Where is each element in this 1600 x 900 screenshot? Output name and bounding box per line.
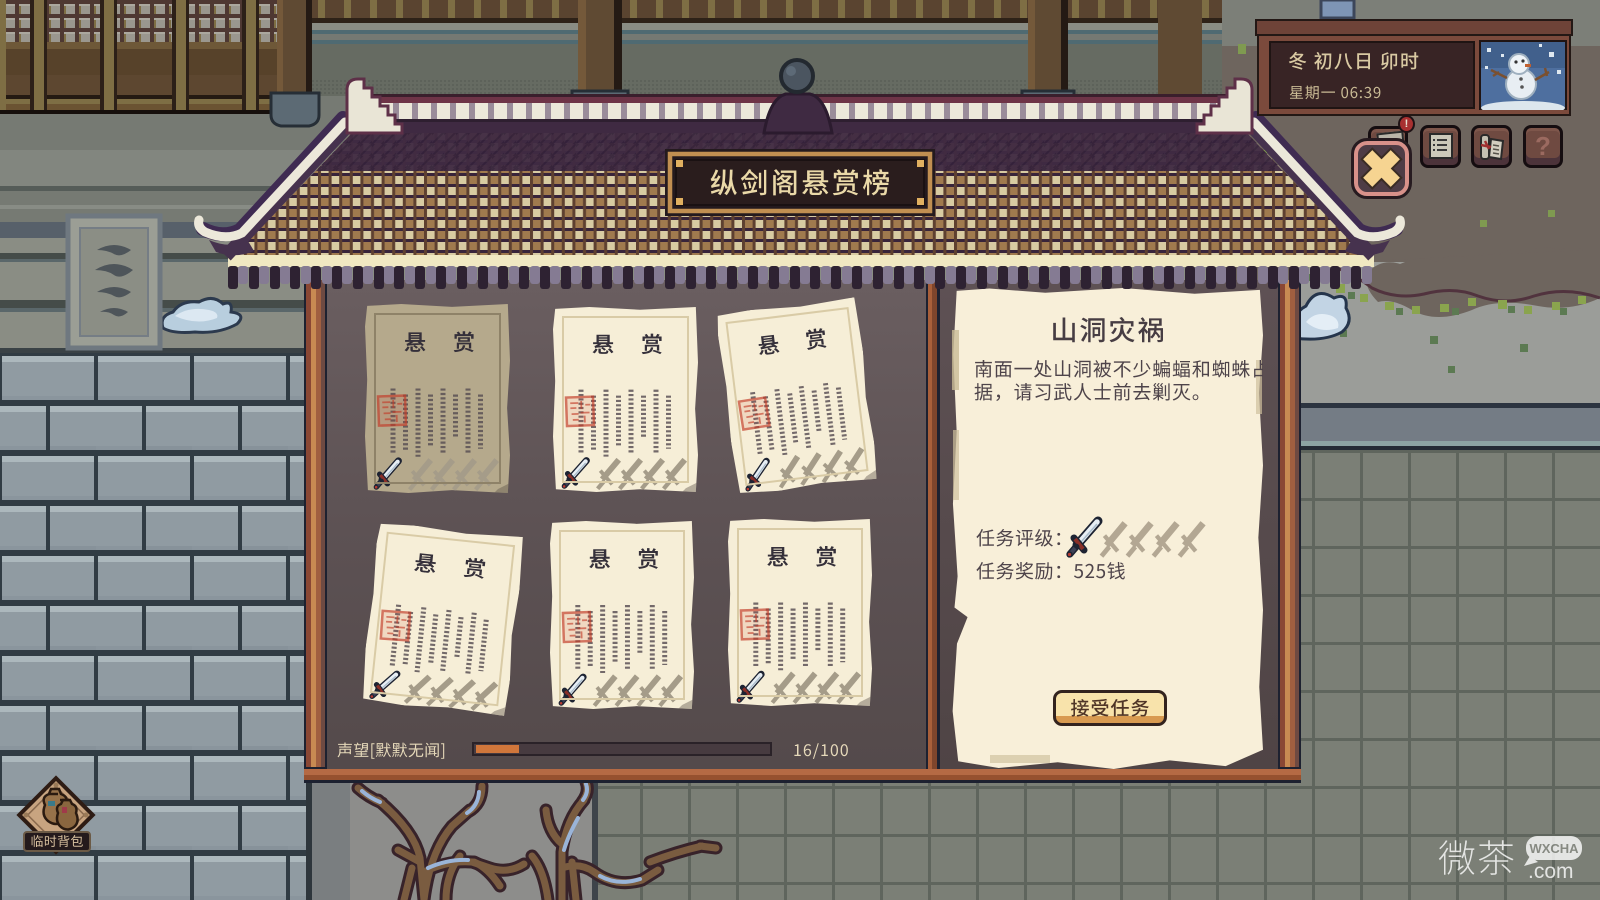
svg-text:.com: .com <box>1528 860 1574 883</box>
svg-text:WXCHA: WXCHA <box>1529 841 1579 856</box>
